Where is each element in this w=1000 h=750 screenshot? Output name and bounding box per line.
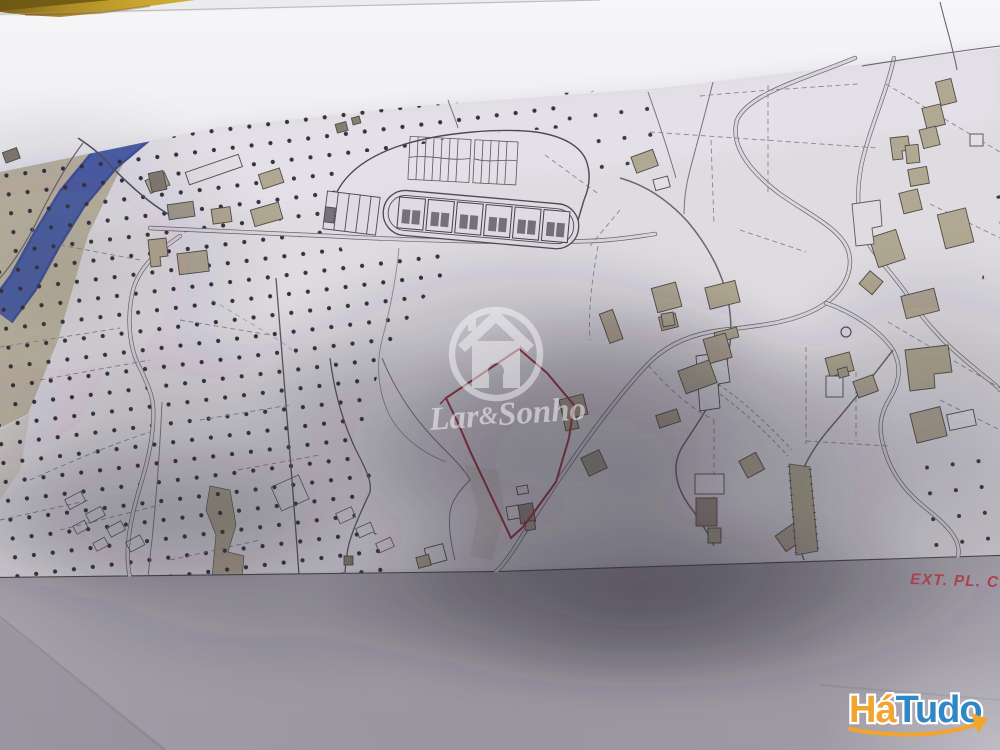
svg-text:HáTudo: HáTudo xyxy=(849,689,982,731)
